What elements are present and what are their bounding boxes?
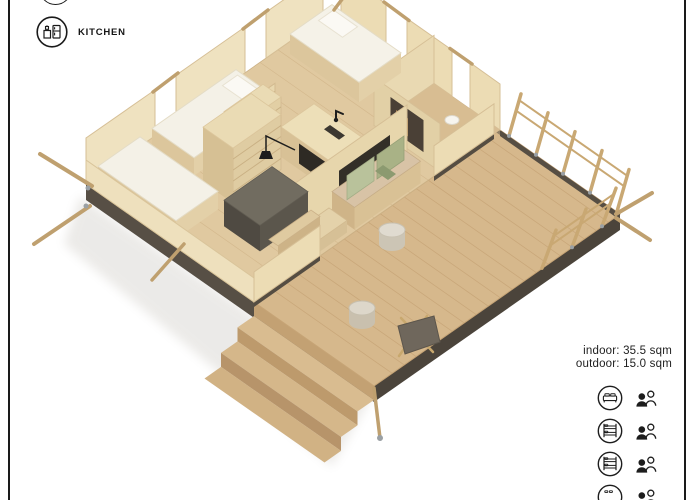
two-persons-icon: [634, 488, 658, 500]
stool: [379, 223, 405, 251]
capacity-row: [597, 385, 658, 411]
deck-stool: [349, 301, 375, 329]
two-persons-icon: [634, 422, 658, 440]
capacity-row: [597, 451, 658, 477]
kitchen-legend: KITCHEN: [36, 16, 126, 48]
indoor-area-text: indoor: 35.5 sqm: [576, 345, 672, 358]
two-persons-icon: [634, 455, 658, 473]
capacity-row: [597, 418, 658, 444]
two-persons-icon: [634, 389, 658, 407]
bunk-bed-icon: [597, 451, 623, 477]
outdoor-area-text: outdoor: 15.0 sqm: [576, 358, 672, 371]
capacity-row: [597, 484, 658, 500]
cropped-bed-icon: [597, 484, 623, 500]
area-info: indoor: 35.5 sqm outdoor: 15.0 sqm: [576, 345, 672, 371]
floorplan-page: KITCHEN indoor: 35.5 sqm outdoor: 15.0 s…: [0, 0, 700, 500]
kitchen-label: KITCHEN: [78, 27, 126, 38]
double-bed-icon: [597, 385, 623, 411]
kitchen-appliances-icon: [36, 16, 68, 48]
bunk-bed-icon: [597, 418, 623, 444]
floorplan-render: [0, 0, 700, 500]
